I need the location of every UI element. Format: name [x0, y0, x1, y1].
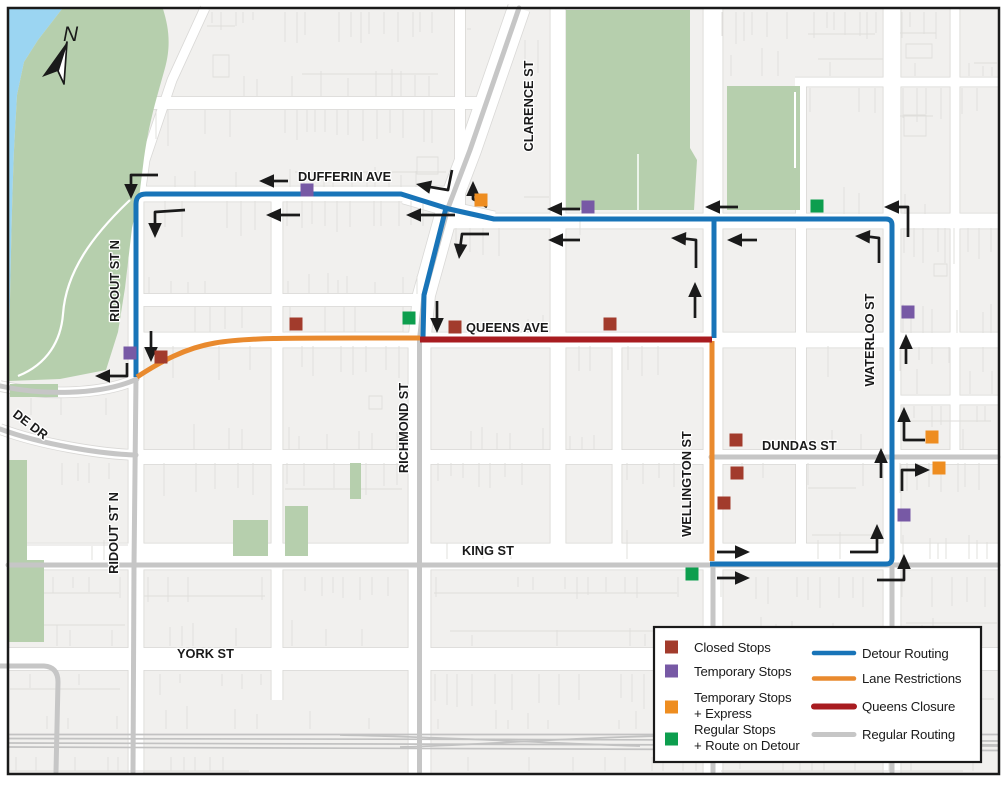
svg-text:RIDOUT ST N: RIDOUT ST N: [106, 492, 121, 574]
svg-text:Detour Routing: Detour Routing: [862, 646, 949, 661]
svg-text:Regular Stops: Regular Stops: [694, 722, 776, 737]
svg-text:+ Route on Detour: + Route on Detour: [694, 738, 800, 753]
svg-text:DUNDAS ST: DUNDAS ST: [762, 438, 837, 453]
svg-text:Temporary Stops: Temporary Stops: [694, 690, 792, 705]
svg-text:QUEENS AVE: QUEENS AVE: [466, 320, 549, 335]
svg-text:KING ST: KING ST: [462, 543, 514, 558]
svg-text:WATERLOO ST: WATERLOO ST: [862, 293, 877, 386]
svg-text:Regular Routing: Regular Routing: [862, 727, 955, 742]
svg-text:N: N: [63, 23, 79, 46]
svg-text:DUFFERIN AVE: DUFFERIN AVE: [298, 169, 392, 184]
svg-text:Temporary Stops: Temporary Stops: [694, 664, 792, 679]
svg-text:YORK ST: YORK ST: [177, 646, 234, 661]
svg-text:+ Express: + Express: [694, 706, 752, 721]
svg-text:Queens Closure: Queens Closure: [862, 699, 955, 714]
svg-text:Closed Stops: Closed Stops: [694, 640, 771, 655]
svg-text:CLARENCE ST: CLARENCE ST: [521, 60, 536, 151]
svg-text:Lane Restrictions: Lane Restrictions: [862, 671, 962, 686]
svg-text:WELLINGTON ST: WELLINGTON ST: [679, 431, 694, 537]
svg-text:RICHMOND ST: RICHMOND ST: [396, 383, 411, 473]
svg-text:RIDOUT ST N: RIDOUT ST N: [107, 240, 122, 322]
